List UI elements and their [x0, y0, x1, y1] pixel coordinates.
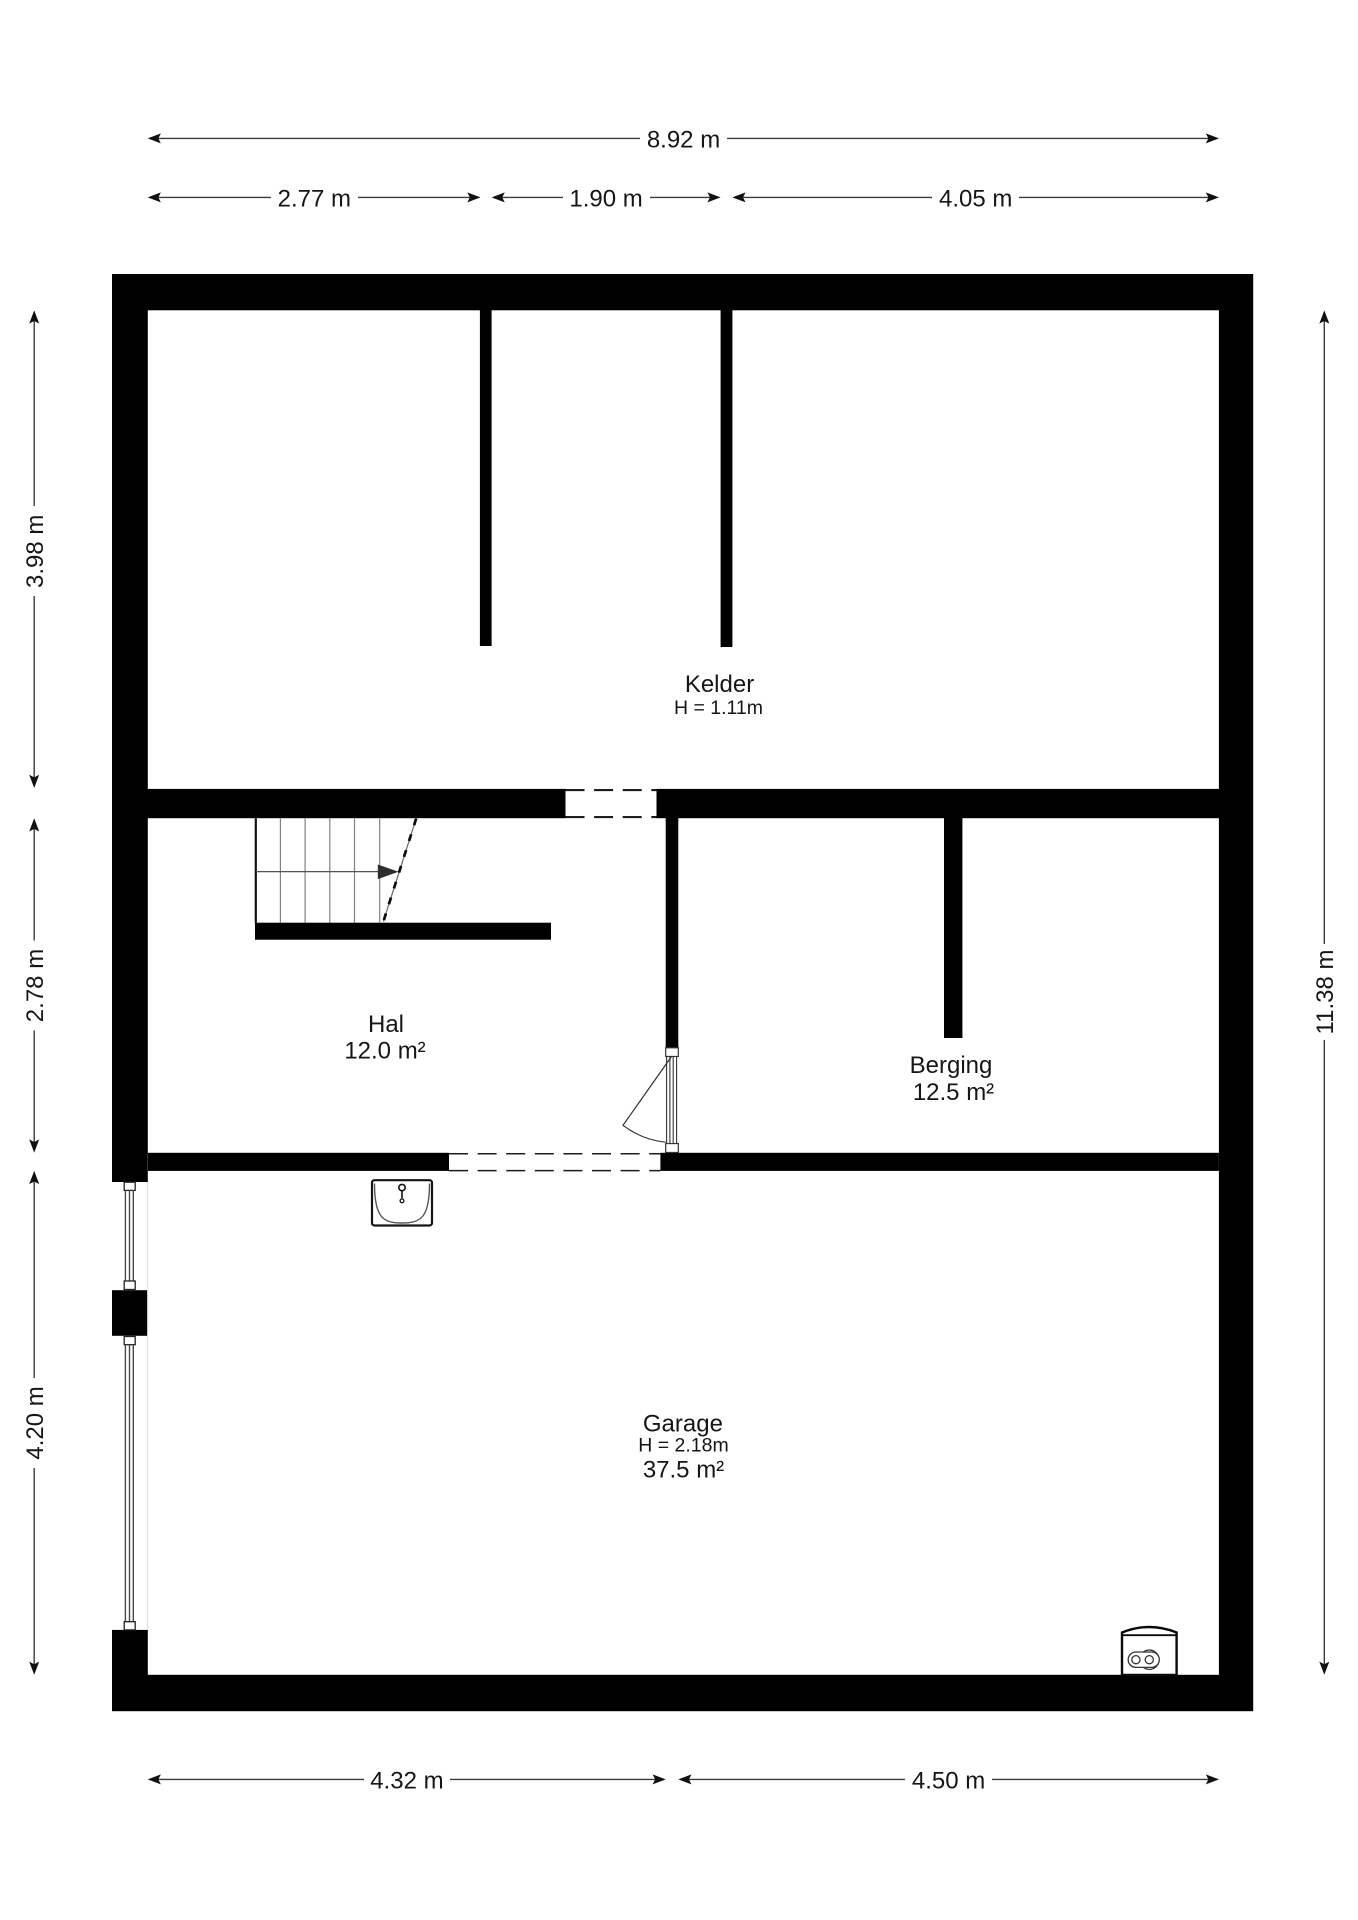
svg-text:Kelder: Kelder	[685, 671, 754, 698]
svg-text:4.50 m: 4.50 m	[912, 1767, 985, 1794]
svg-text:12.0 m²: 12.0 m²	[344, 1038, 425, 1065]
svg-text:H = 1.11m: H = 1.11m	[674, 697, 763, 719]
svg-text:12.5 m²: 12.5 m²	[913, 1079, 994, 1106]
svg-text:Berging: Berging	[910, 1052, 993, 1079]
svg-text:1.90 m: 1.90 m	[569, 186, 642, 213]
svg-text:8.92 m: 8.92 m	[647, 127, 720, 154]
svg-text:4.20 m: 4.20 m	[22, 1386, 49, 1459]
svg-text:3.98 m: 3.98 m	[22, 515, 49, 588]
svg-text:11.38 m: 11.38 m	[1312, 950, 1339, 1035]
svg-text:Hal: Hal	[368, 1011, 404, 1038]
svg-text:4.32 m: 4.32 m	[370, 1767, 443, 1794]
svg-text:H = 2.18m: H = 2.18m	[638, 1435, 729, 1457]
svg-text:2.78 m: 2.78 m	[22, 949, 49, 1022]
svg-text:37.5 m²: 37.5 m²	[643, 1456, 724, 1483]
svg-text:Garage: Garage	[643, 1410, 723, 1437]
svg-text:2.77 m: 2.77 m	[278, 186, 351, 213]
svg-text:4.05 m: 4.05 m	[939, 186, 1012, 213]
